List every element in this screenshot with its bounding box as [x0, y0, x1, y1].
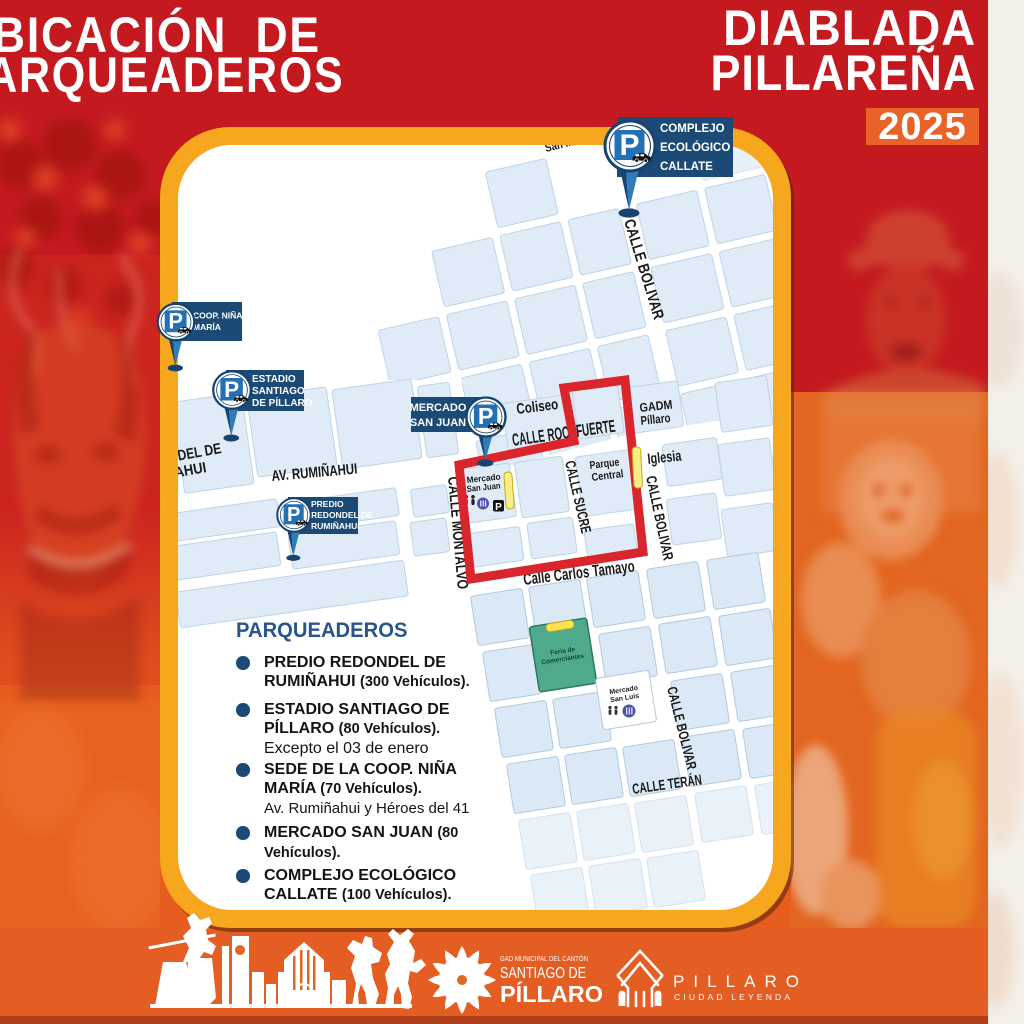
- svg-text:CIUDAD LEYENDA: CIUDAD LEYENDA: [674, 992, 790, 1002]
- svg-text:SANTIAGO DE: SANTIAGO DE: [500, 965, 586, 982]
- svg-text:PILLARO: PILLARO: [673, 972, 799, 991]
- svg-text:PÍLLARO: PÍLLARO: [500, 980, 603, 1007]
- svg-text:GAD MUNICIPAL DEL CANTÓN: GAD MUNICIPAL DEL CANTÓN: [500, 954, 588, 963]
